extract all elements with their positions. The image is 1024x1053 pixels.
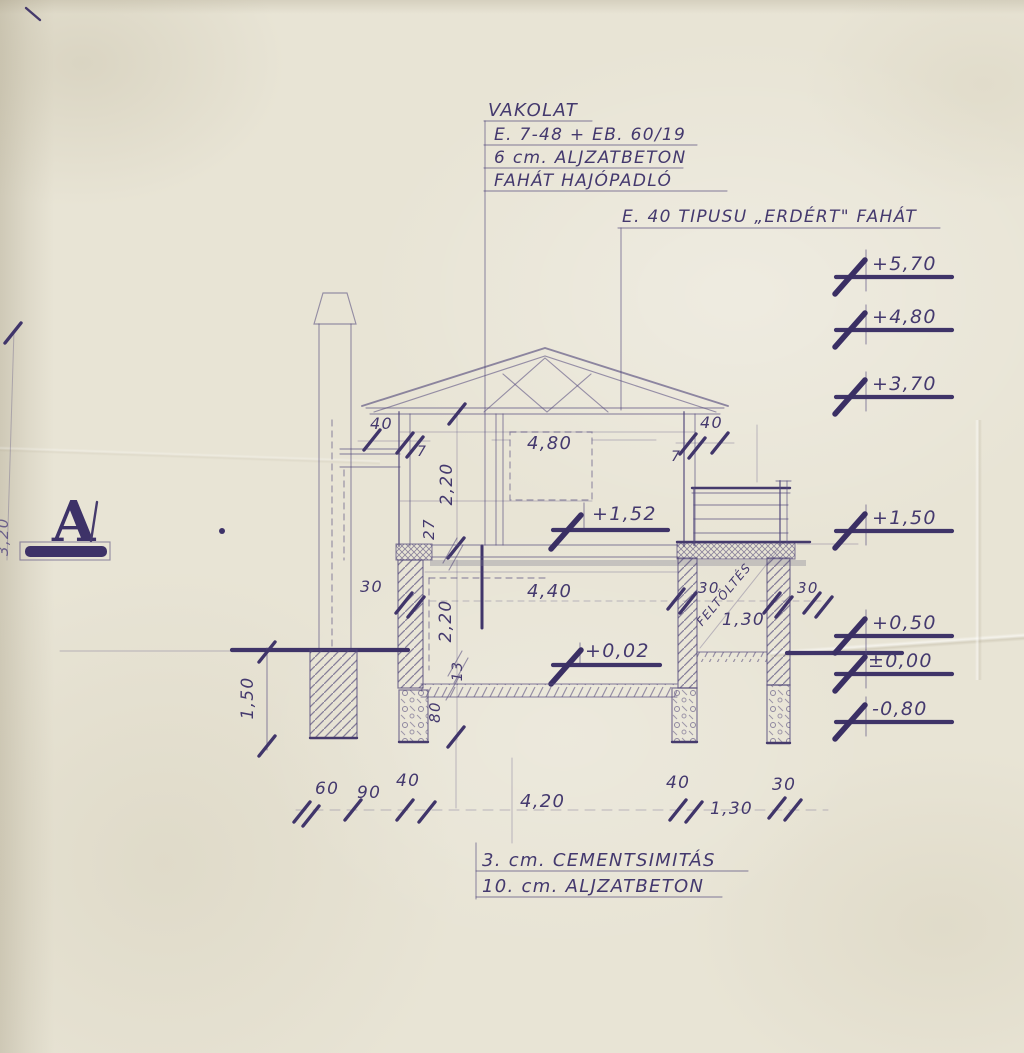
dim-eave-right-offset: 7 [671,449,681,465]
wall-terrace-outer [767,558,790,685]
elevation-label: +1,50 [872,507,937,529]
ink-dot [219,528,225,534]
elevation-mark-050: +0,50 [835,610,952,653]
floor-slab-band [421,684,677,697]
section-marker-bar [25,546,107,557]
elevation-mark-150: +1,50 [835,505,952,548]
dim-foundation-depth: 80 [426,701,444,723]
elevation-label: -0,80 [872,698,928,720]
level-ground-label: +0,02 [585,640,650,662]
section-drawing: 3,20 A VAKOLAT E. 7-48 + EB. 60/19 6 cm.… [0,0,1024,1053]
dim-left-wall: 30 [360,577,383,596]
level-upper-label: +1,52 [592,503,657,525]
level-mark-ground-floor: +0,02 [551,640,660,684]
dim-mid-slab: 27 [420,518,438,540]
material-notes-top: VAKOLAT E. 7-48 + EB. 60/19 6 cm. ALJZAT… [484,100,727,545]
note-cementsimitas: 3. cm. CEMENTSIMITÁS [482,849,716,871]
note-e748: E. 7-48 + EB. 60/19 [494,125,686,145]
note-aljzatbeton-10: 10. cm. ALJZATBETON [482,876,704,897]
dim-eave-right: 40 [700,413,723,432]
bottom-dimension-row: 60 90 40 4,20 40 1,30 30 [294,740,828,826]
dim-upper-room-height: 2,20 [437,462,457,505]
note-erdert-fahat: E. 40 TIPUSU „ERDÉRT" FAHÁT [622,205,917,227]
elevation-mark-neg080: -0,80 [835,697,952,739]
note-hajopadlo: FAHÁT HAJÓPADLÓ [494,169,672,191]
elevation-mark-000: ±0,00 [835,650,952,691]
dim-chimney-foundation: 1,50 [238,676,258,719]
elevation-marks: +5,70 +4,80 +3,70 +1,50 [835,250,952,739]
dim-terrace-wall-outer: 30 [797,579,819,597]
dim-bottom-40a: 40 [396,771,420,791]
dim-bottom-60: 60 [315,779,339,799]
chimney-cap [314,293,356,324]
dim-bottom-420: 4,20 [520,791,565,812]
elevation-label: +4,80 [872,306,937,328]
dim-bottom-130: 1,30 [710,799,753,819]
dim-bottom-90: 90 [357,783,381,803]
paper-edge-marks: 3,20 [0,8,40,560]
section-marker-letter: A [51,489,97,555]
note-aljzatbeton-6: 6 cm. ALJZATBETON [494,148,686,168]
dim-upper-room-width: 4,80 [527,433,572,454]
dim-bottom-30: 30 [772,775,796,795]
pier-inner [672,688,697,742]
chimney [314,293,400,650]
dim-eave-left-offset: 7 [417,444,427,460]
elevation-label: ±0,00 [868,650,933,672]
wall-left [398,560,423,688]
dim-room-height: 2,20 [436,599,456,642]
wall-terrace-inner [678,558,697,688]
blueprint-paper: 3,20 A VAKOLAT E. 7-48 + EB. 60/19 6 cm.… [0,0,1024,1053]
note-vakolat: VAKOLAT [488,100,579,121]
elevation-label: +0,50 [872,612,937,634]
elevation-label: +5,70 [872,253,937,275]
roof-truss [362,348,728,414]
elevation-mark-480: +4,80 [835,305,952,347]
elevation-mark-370: +3,70 [835,372,952,414]
pier-left [399,690,428,742]
edge-dimension-label: 3,20 [0,517,12,556]
chimney-foundation [310,650,357,738]
material-notes-bottom: 3. cm. CEMENTSIMITÁS 10. cm. ALJZATBETON [476,758,748,899]
dim-room-width: 4,40 [527,581,572,602]
elevation-label: +3,70 [872,373,937,395]
dim-bottom-40b: 40 [666,773,690,793]
elevation-mark-570: +5,70 [835,250,952,294]
section-marker: A [20,489,225,560]
level-mark-upper-floor: +1,52 [551,503,668,549]
pier-outer [767,685,790,743]
